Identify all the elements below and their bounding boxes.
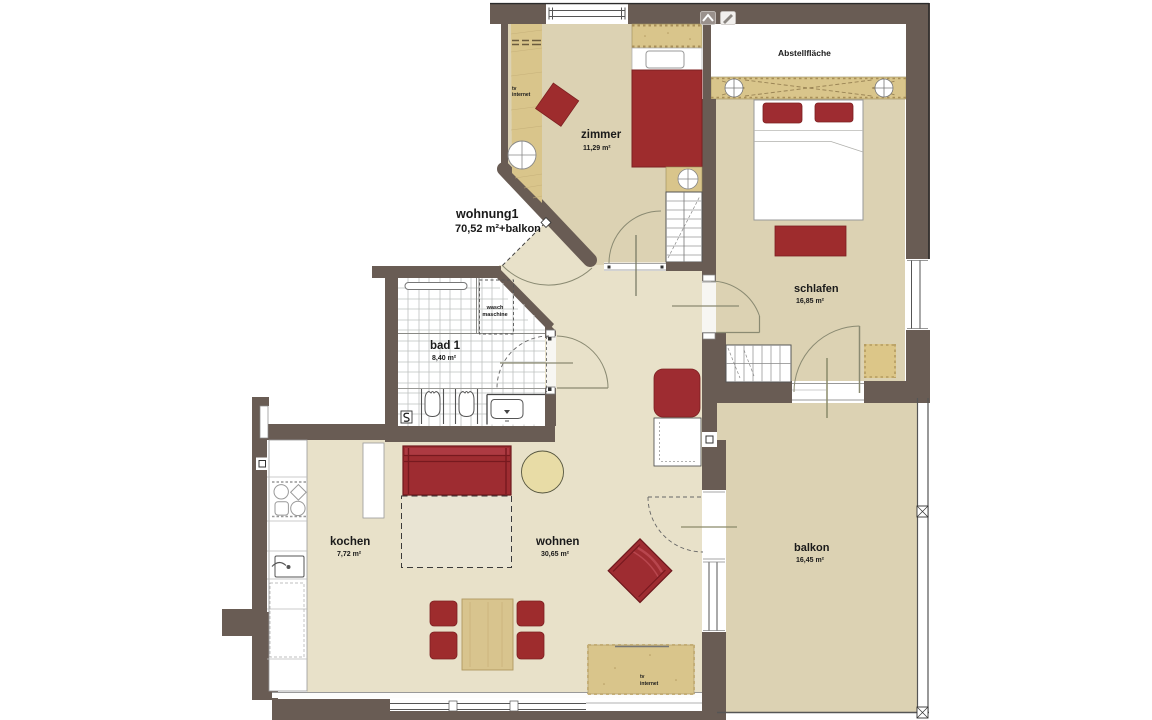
svg-text:tv: tv	[640, 674, 645, 680]
svg-text:11,29 m²: 11,29 m²	[583, 145, 611, 152]
svg-text:zimmer: zimmer	[581, 129, 622, 141]
svg-text:schlafen: schlafen	[794, 283, 839, 295]
svg-text:maschine: maschine	[482, 312, 507, 318]
svg-text:30,65 m²: 30,65 m²	[541, 551, 570, 558]
svg-text:internet: internet	[512, 92, 531, 98]
svg-text:bad 1: bad 1	[430, 340, 461, 352]
svg-text:70,52 m²+balkon: 70,52 m²+balkon	[455, 223, 541, 235]
svg-text:16,85 m²: 16,85 m²	[796, 298, 825, 305]
svg-text:8,40 m²: 8,40 m²	[432, 355, 457, 362]
svg-text:16,45 m²: 16,45 m²	[796, 557, 825, 564]
svg-text:kochen: kochen	[330, 536, 370, 548]
svg-text:wohnung1: wohnung1	[455, 207, 519, 221]
svg-text:Abstellfläche: Abstellfläche	[778, 48, 831, 58]
svg-text:wasch: wasch	[486, 305, 504, 311]
svg-text:7,72 m²: 7,72 m²	[337, 551, 362, 558]
svg-text:balkon: balkon	[794, 542, 830, 554]
svg-text:wohnen: wohnen	[535, 536, 579, 548]
svg-text:internet: internet	[640, 681, 659, 687]
